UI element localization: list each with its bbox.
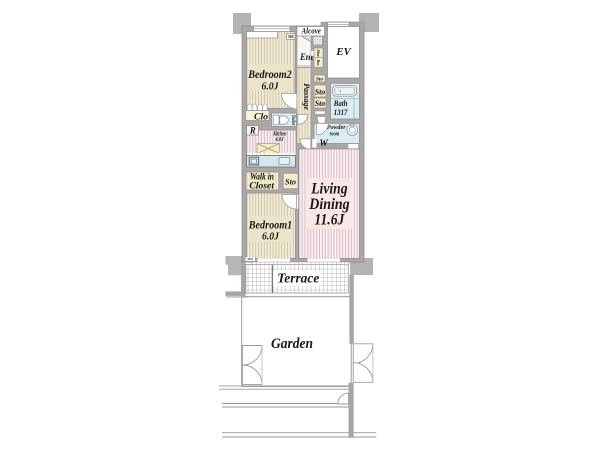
svg-text:Toilet: Toilet bbox=[290, 115, 295, 126]
svg-text:Terrace: Terrace bbox=[277, 272, 319, 287]
svg-text:R: R bbox=[249, 126, 256, 136]
svg-text:Clo: Clo bbox=[254, 113, 268, 123]
svg-text:Sto: Sto bbox=[315, 86, 326, 96]
svg-text:1317: 1317 bbox=[334, 108, 349, 117]
svg-text:Sto: Sto bbox=[315, 98, 326, 108]
svg-text:Bath: Bath bbox=[333, 99, 348, 108]
svg-text:room: room bbox=[330, 130, 339, 137]
svg-text:2610: 2610 bbox=[246, 258, 253, 261]
svg-text:Closet: Closet bbox=[249, 181, 274, 191]
svg-text:Dining: Dining bbox=[308, 196, 349, 213]
svg-text:Shoe: Shoe bbox=[316, 50, 320, 58]
svg-text:MB: MB bbox=[287, 35, 294, 39]
svg-text:Box: Box bbox=[316, 59, 320, 66]
svg-text:6.0J: 6.0J bbox=[262, 231, 279, 243]
svg-text:4.0J: 4.0J bbox=[275, 137, 285, 143]
svg-text:Bedroom2: Bedroom2 bbox=[247, 67, 291, 81]
svg-text:6.0J: 6.0J bbox=[262, 80, 279, 92]
svg-text:11.6J: 11.6J bbox=[314, 212, 345, 229]
svg-text:Passage: Passage bbox=[302, 83, 312, 110]
svg-text:Alcove: Alcove bbox=[301, 27, 322, 36]
svg-text:EV: EV bbox=[335, 47, 351, 58]
svg-text:Sto: Sto bbox=[316, 77, 324, 82]
svg-text:Bedroom1: Bedroom1 bbox=[248, 218, 292, 232]
svg-text:Sto: Sto bbox=[285, 176, 296, 186]
svg-text:Garden: Garden bbox=[271, 336, 313, 352]
svg-text:W: W bbox=[319, 139, 328, 149]
